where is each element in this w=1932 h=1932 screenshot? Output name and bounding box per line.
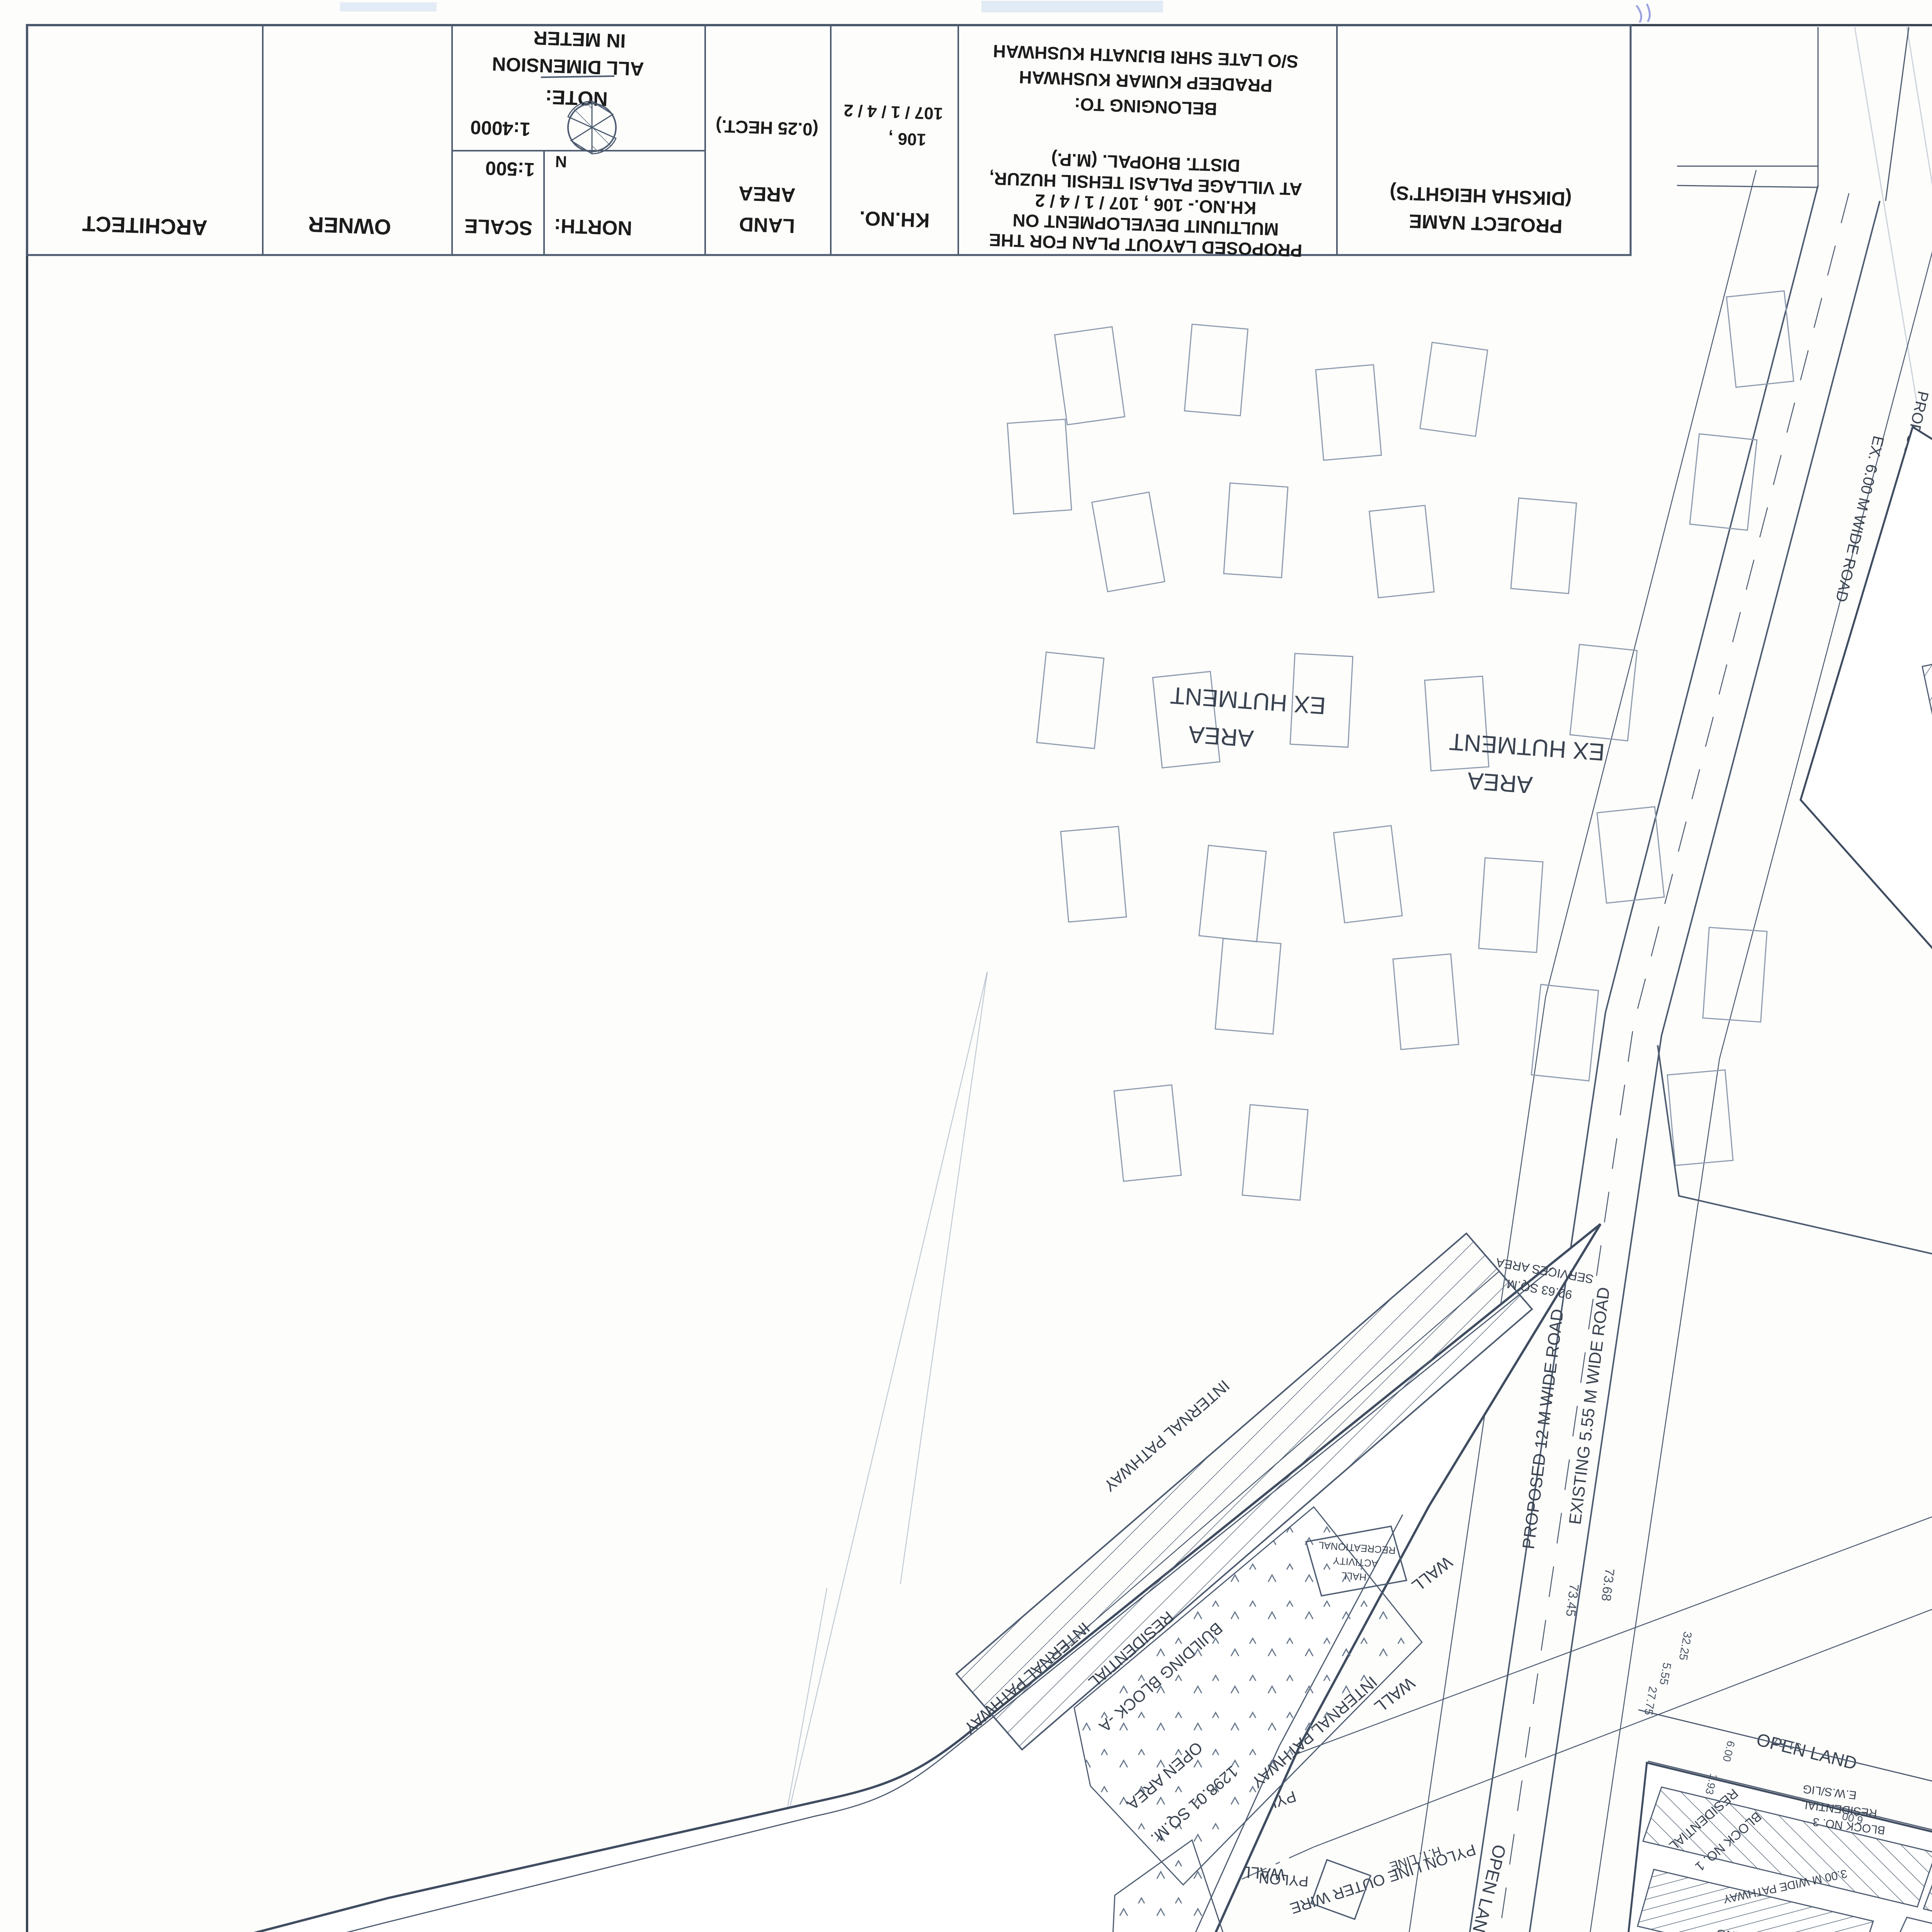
- scale-value-500: 1:500: [485, 157, 535, 180]
- project-name-value: (DIKSHA HEIGHT'S): [1389, 182, 1572, 210]
- land-area-label-1: LAND: [739, 213, 795, 237]
- ex-hutment-2-line1: EX HUTMENT: [1449, 728, 1606, 765]
- pylon-label: PYLON: [1258, 1870, 1309, 1889]
- ex-hutment-1-line2: AREA: [1187, 721, 1255, 752]
- triangle-parcel: RESIDENTIAL BLOCK NO. 1 E.W.S/LIG RESIDE…: [1556, 1710, 1932, 1932]
- project-name-label: PROJECT NAME: [1408, 210, 1563, 237]
- north-label: NORTH:: [554, 214, 633, 239]
- architect-label: ARCHITECT: [82, 211, 208, 240]
- north-letter: N: [555, 152, 567, 171]
- recreational-line3: HALL: [1341, 1570, 1367, 1583]
- ews-line1: E.W.S/LIG: [1802, 1782, 1857, 1802]
- ex-hutment-2-line2: AREA: [1466, 767, 1534, 798]
- wall-label-p1: WALL: [1408, 1552, 1456, 1595]
- land-area-label-2: AREA: [738, 182, 796, 206]
- owner-label: OWNER: [308, 212, 391, 239]
- dim-6-00-t1: 6.00: [1721, 1740, 1737, 1763]
- sheet-border: [27, 25, 1932, 1932]
- title-block: ARCHITECT OWNER IN METER ALL DIMENSION N…: [27, 25, 1631, 261]
- diagonal-road-lines: [1356, 27, 1932, 1932]
- land-area-value: (0.25 HECT.): [715, 116, 819, 139]
- dim-73-68: 73.68: [1599, 1568, 1617, 1602]
- dim-32-25: 32.25: [1677, 1631, 1694, 1662]
- scale-label: SCALE: [464, 214, 533, 239]
- site-plan-drawing: ARCHITECT OWNER IN METER ALL DIMENSION N…: [0, 0, 1932, 1932]
- open-land-label-1: OPEN LAND: [1755, 1729, 1859, 1774]
- scanned-site-plan-sheet: ARCHITECT OWNER IN METER ALL DIMENSION N…: [0, 0, 1932, 1932]
- main-parcel: RESIDENTIAL BUILDING BLOCK -A INTERNAL P…: [123, 1224, 1600, 1932]
- hut-outlines: [1007, 291, 1794, 1200]
- diagonal-road-labels: EX. 6.00 M WIDE ROAD PROPOSE 12.00 M WID…: [1402, 389, 1932, 1932]
- dim-73-45: 73.45: [1563, 1583, 1582, 1617]
- scale-value-4000: 1:4000: [470, 116, 531, 140]
- belonging-label: BELONGING TO:: [1074, 94, 1217, 119]
- dim-5-55: 5.55: [1657, 1662, 1673, 1686]
- north-compass-icon: N: [555, 101, 616, 171]
- khno-value-1: 106 ,: [888, 129, 927, 149]
- northeast-parcel: OPEN OPEN 6.00 M WIDE ROAD 6.00 M WIDE R…: [1801, 427, 1932, 1180]
- khno-label: KH.NO.: [859, 207, 930, 231]
- khno-value-2: 107 / 1 / 4 / 2: [844, 101, 943, 123]
- note-line1: ALL DIMENSION: [492, 53, 644, 80]
- hutment-area: EX HUTMENT AREA EX HUTMENT AREA: [1007, 291, 1794, 1200]
- belonging-line1: PRADEEP KUMAR KUSHWAH: [1019, 67, 1272, 96]
- belonging-line2: S/O LATE SHRI BIJNATH KUSHWAH: [993, 41, 1299, 72]
- note-line2: IN METER: [533, 27, 626, 52]
- ex-hutment-1-line1: EX HUTMENT: [1170, 682, 1327, 719]
